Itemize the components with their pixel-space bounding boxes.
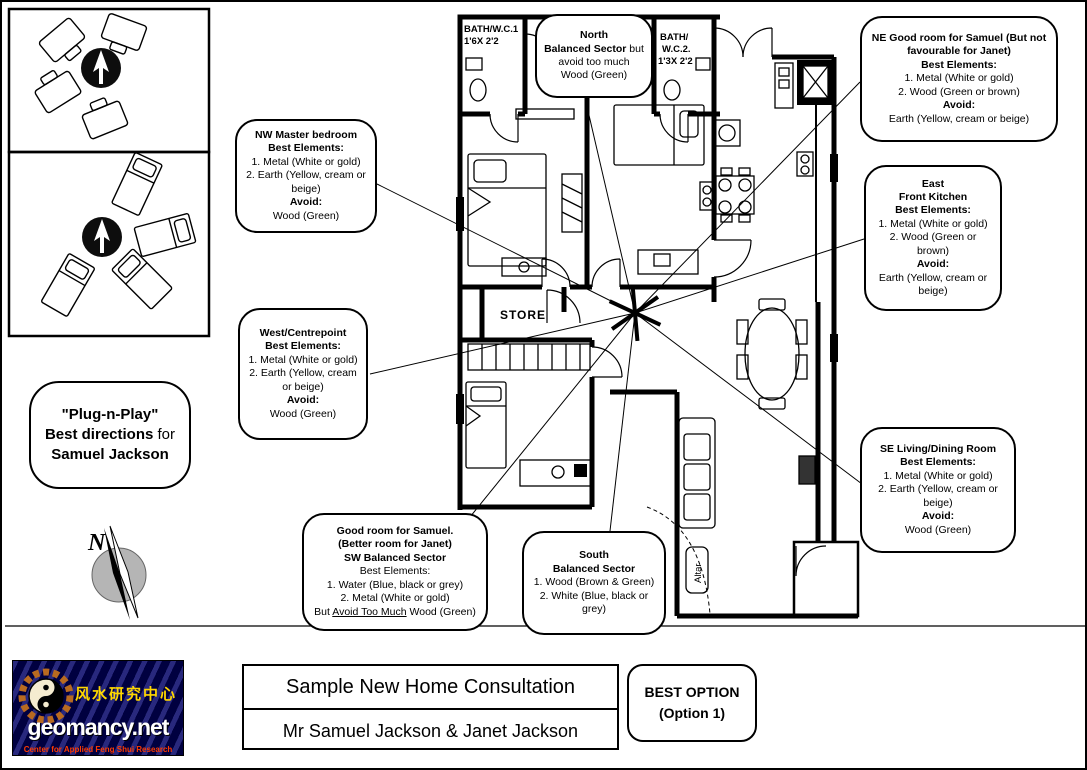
altar-label: Altar — [693, 563, 704, 583]
furniture — [466, 58, 834, 593]
bed-direction-diagram — [9, 152, 209, 336]
master-wardrobe — [562, 174, 582, 232]
callout-west-centrepoint: West/CentrepointBest Elements:1. Metal (… — [238, 308, 368, 440]
best-option-line1: BEST OPTION — [629, 682, 755, 703]
bedroom3-bed — [466, 382, 506, 468]
plug-n-play-bubble: "Plug-n-Play"Best directions forSamuel J… — [29, 381, 191, 489]
title-block: Sample New Home Consultation Mr Samuel J… — [242, 664, 619, 750]
guest-desk — [638, 250, 698, 274]
callout-northeast: NE Good room for Samuel (But not favoura… — [860, 16, 1058, 142]
bedroom3-wardrobe — [468, 344, 590, 370]
store-label: STORE — [500, 308, 546, 322]
best-option-badge: BEST OPTION (Option 1) — [627, 664, 757, 742]
callout-southeast-living-dining: SE Living/Dining RoomBest Elements:1. Me… — [860, 427, 1016, 553]
callout-southwest-room: Good room for Samuel.(Better room for Ja… — [302, 513, 488, 631]
callout-north: NorthBalanced Sector butavoid too much W… — [535, 14, 653, 98]
balcony — [794, 542, 858, 616]
service-shaft — [797, 60, 834, 105]
consultation-sheet: N — [0, 0, 1087, 770]
dining-table — [737, 299, 807, 409]
client-names: Mr Samuel Jackson & Janet Jackson — [244, 710, 617, 752]
door-arcs — [490, 28, 826, 576]
bedroom3-desk — [520, 460, 592, 486]
sofa — [679, 418, 715, 528]
stove — [797, 152, 813, 176]
geomancy-logo: 风水研究中心 geomancy.net Center for Applied F… — [12, 660, 184, 756]
centerpoint-star — [610, 285, 661, 341]
consultation-title: Sample New Home Consultation — [244, 666, 617, 710]
bath1-label: BATH/W.C.1 — [464, 24, 519, 35]
kitchen-table — [716, 168, 754, 222]
north-label: N — [87, 530, 107, 556]
fridge — [775, 63, 793, 108]
logo-tagline: Center for Applied Feng Shui Research — [13, 745, 183, 754]
bath2-label: BATH/ — [660, 32, 689, 43]
callout-east-kitchen: EastFront KitchenBest Elements:1. Metal … — [864, 165, 1002, 311]
logo-chinese-text: 风水研究中心 — [75, 683, 177, 704]
kitchen-sink — [714, 120, 740, 146]
callout-northwest-master-bedroom: NW Master bedroomBest Elements:1. Metal … — [235, 119, 377, 233]
callout-south: SouthBalanced Sector1. Wood (Brown & Gre… — [522, 531, 666, 635]
seating-direction-diagram — [9, 9, 209, 152]
best-option-line2: (Option 1) — [629, 703, 755, 724]
north-compass: N — [87, 526, 146, 620]
dresser — [502, 258, 546, 276]
tv — [799, 456, 815, 484]
bath2-size: 1'3X 2'2 — [658, 56, 693, 67]
logo-brand-text: geomancy.net — [13, 714, 183, 741]
bath1-size: 1'6X 2'2 — [464, 36, 499, 47]
bath2-label2: W.C.2. — [662, 44, 691, 55]
